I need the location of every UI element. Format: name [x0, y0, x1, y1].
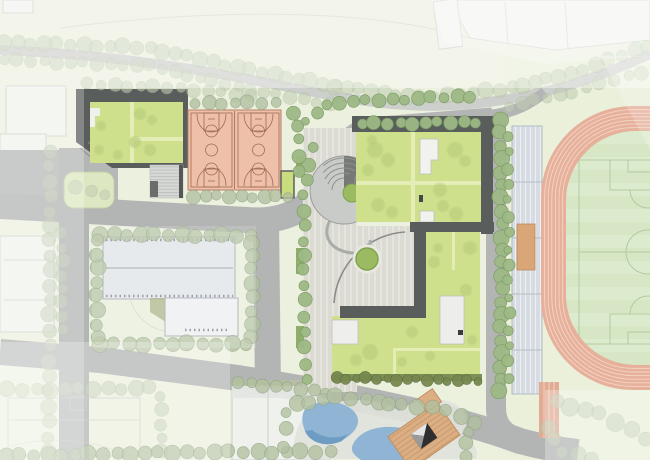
tree	[294, 134, 304, 144]
tree	[161, 82, 173, 94]
tree	[225, 335, 241, 351]
north-classroom-building	[352, 116, 494, 234]
tree	[576, 65, 588, 77]
tree	[504, 374, 514, 384]
tree	[43, 160, 55, 172]
grandstand-bleachers	[512, 126, 542, 394]
tree	[203, 95, 217, 109]
tree	[256, 379, 270, 393]
tree	[412, 91, 426, 105]
tree	[89, 288, 103, 302]
tree	[211, 190, 221, 200]
tree	[245, 306, 257, 318]
tree	[420, 117, 432, 129]
tree	[55, 270, 67, 282]
tree	[470, 118, 480, 128]
roof-penthouse	[440, 296, 464, 344]
tree	[256, 98, 268, 110]
tree	[12, 35, 26, 49]
tree	[297, 263, 309, 275]
tree	[90, 57, 104, 71]
tree	[412, 375, 420, 383]
tree	[515, 78, 531, 94]
tree	[49, 36, 63, 50]
context-building-west	[6, 86, 66, 136]
tree	[624, 421, 640, 437]
roof-cutout	[420, 211, 434, 222]
tree	[361, 393, 373, 405]
tree	[43, 369, 57, 383]
tree	[608, 75, 620, 87]
tree	[271, 89, 281, 99]
tree	[279, 71, 293, 85]
tree	[45, 339, 57, 351]
tree	[309, 384, 321, 396]
tree	[216, 87, 226, 97]
tree	[181, 70, 193, 82]
tree	[242, 62, 256, 76]
tree	[395, 398, 407, 410]
tree	[459, 436, 473, 450]
tree	[157, 433, 167, 443]
tree	[564, 66, 578, 80]
tree	[146, 79, 160, 93]
tree	[12, 448, 26, 460]
tree	[100, 190, 110, 200]
tree	[176, 82, 186, 92]
tree	[332, 96, 346, 110]
tree	[528, 93, 540, 105]
tree	[222, 190, 236, 204]
tree	[209, 338, 223, 352]
tree	[65, 57, 77, 69]
tree	[164, 445, 180, 460]
tree	[58, 382, 72, 396]
tree	[58, 284, 68, 294]
tree	[606, 414, 624, 432]
tree	[299, 219, 311, 231]
tree	[247, 193, 257, 203]
context-building	[433, 0, 463, 49]
tree	[578, 402, 594, 418]
grandstand-bench	[517, 224, 535, 270]
tree	[143, 59, 155, 71]
tree	[40, 56, 50, 66]
tree	[282, 382, 292, 392]
tree	[570, 446, 586, 460]
tree	[240, 339, 252, 351]
tree	[638, 432, 650, 446]
tree	[108, 227, 122, 241]
tree	[200, 190, 212, 202]
tree	[502, 211, 514, 223]
tree	[478, 82, 494, 98]
infield-markings	[566, 131, 650, 352]
tree	[24, 38, 36, 50]
tree	[42, 233, 56, 247]
tree	[154, 337, 166, 349]
tree	[403, 375, 413, 385]
tree	[454, 409, 470, 425]
tree	[298, 248, 312, 262]
tree	[298, 311, 310, 323]
tree	[443, 378, 451, 386]
tree	[186, 190, 200, 204]
tree	[505, 294, 513, 302]
tree	[85, 381, 101, 397]
tree	[28, 450, 40, 460]
campus-road-center	[266, 220, 268, 390]
tree	[105, 58, 117, 70]
tree	[180, 445, 194, 459]
tree	[72, 382, 84, 394]
tree	[43, 414, 57, 428]
tree	[246, 249, 260, 263]
tree	[312, 107, 324, 119]
tree	[561, 398, 579, 416]
tree	[426, 400, 440, 414]
tree	[190, 99, 200, 109]
tree	[56, 254, 70, 268]
tree	[90, 319, 102, 331]
tree	[308, 142, 318, 152]
tree	[86, 185, 98, 197]
tree	[9, 52, 23, 66]
tree	[301, 117, 309, 125]
tree	[114, 38, 130, 54]
tree	[300, 327, 310, 337]
tree	[258, 86, 270, 98]
tree	[89, 40, 103, 54]
tree	[624, 70, 634, 80]
tree	[44, 189, 58, 203]
tree	[297, 340, 311, 354]
tree	[474, 378, 482, 386]
tree	[439, 93, 449, 103]
tree	[582, 83, 592, 93]
tree	[634, 66, 648, 80]
tree	[43, 206, 55, 218]
tree	[327, 388, 343, 404]
tree	[432, 117, 442, 127]
tree	[41, 399, 57, 415]
tree	[444, 116, 458, 130]
tree	[54, 294, 68, 308]
tree	[237, 447, 249, 459]
tree	[240, 95, 254, 109]
tree	[107, 337, 119, 349]
tree	[297, 205, 311, 219]
tree	[92, 234, 104, 246]
tree	[504, 102, 514, 112]
tree	[359, 371, 371, 383]
tree	[277, 441, 289, 453]
context-building	[3, 0, 33, 13]
tree	[504, 246, 512, 254]
tree	[348, 95, 360, 107]
tree	[80, 445, 96, 460]
tree	[502, 355, 514, 367]
tree	[122, 447, 138, 460]
tree	[42, 279, 56, 293]
tree	[399, 95, 409, 105]
tree	[283, 193, 293, 203]
tree	[42, 432, 54, 444]
site-plan-drawing	[0, 0, 650, 460]
tree	[81, 77, 93, 89]
tree	[462, 375, 472, 385]
tree	[245, 262, 257, 274]
site-plan-stage	[0, 0, 650, 460]
tree	[540, 72, 552, 84]
tree	[54, 449, 68, 460]
tree	[218, 60, 230, 72]
tree	[302, 72, 318, 88]
tree	[292, 150, 306, 164]
tree	[601, 52, 615, 66]
tree	[556, 447, 568, 459]
tree	[166, 338, 180, 352]
tree	[405, 117, 419, 131]
tree	[25, 56, 37, 68]
tree	[0, 55, 10, 65]
tree	[279, 421, 293, 435]
tree	[118, 61, 128, 71]
tree	[246, 289, 260, 303]
tree	[542, 93, 552, 103]
tree	[50, 56, 64, 70]
tree	[41, 354, 57, 370]
tree	[390, 375, 402, 387]
tree	[236, 190, 248, 202]
tree	[109, 78, 123, 92]
tree	[186, 84, 200, 98]
tree	[178, 335, 194, 351]
tree	[196, 73, 206, 83]
tree	[503, 259, 515, 271]
tree	[142, 380, 156, 394]
tree	[232, 377, 244, 389]
tree	[269, 190, 281, 202]
tree	[146, 227, 160, 241]
tree	[77, 57, 87, 67]
tree	[302, 374, 312, 384]
tree	[298, 237, 308, 247]
tree	[341, 374, 351, 384]
tree	[43, 324, 57, 338]
tree	[592, 406, 606, 420]
tree	[57, 243, 67, 253]
tree	[506, 342, 514, 350]
tree	[162, 230, 174, 242]
tree	[460, 451, 472, 460]
tree	[138, 446, 152, 460]
tree	[135, 337, 151, 353]
tree	[325, 445, 337, 457]
tree	[231, 98, 241, 108]
tree	[55, 227, 67, 239]
tree	[286, 106, 300, 120]
tree	[154, 419, 166, 431]
tree	[58, 324, 68, 334]
tree	[271, 97, 281, 107]
tree	[502, 164, 514, 176]
tree	[505, 148, 513, 156]
courtyard-tree-circle	[354, 246, 380, 272]
tree	[298, 190, 308, 200]
tree	[44, 145, 58, 159]
tree	[158, 65, 168, 75]
tree	[550, 69, 566, 85]
tree	[270, 380, 282, 392]
tree	[121, 230, 133, 242]
tree	[0, 381, 15, 397]
tree	[302, 396, 316, 410]
school-annex-building	[165, 298, 238, 336]
tree	[381, 118, 393, 130]
tree	[96, 448, 110, 460]
basketball-courts	[188, 110, 281, 190]
tree	[256, 67, 268, 79]
tree	[491, 383, 507, 399]
tree	[204, 73, 218, 87]
tree	[214, 226, 230, 242]
tree	[155, 402, 169, 416]
tree	[180, 49, 192, 61]
tree	[283, 91, 297, 105]
tree	[547, 432, 561, 446]
tree	[421, 375, 433, 387]
tree	[91, 277, 103, 289]
tree	[215, 98, 227, 110]
tree	[372, 94, 386, 108]
tree	[221, 444, 235, 458]
tree	[68, 180, 82, 194]
tree	[229, 229, 243, 243]
tree	[293, 165, 305, 177]
tree	[504, 307, 516, 319]
tree	[121, 81, 133, 93]
tree	[439, 404, 451, 416]
tree	[451, 89, 465, 103]
tree	[434, 375, 444, 385]
tree	[90, 302, 106, 318]
tree	[382, 397, 396, 411]
tree	[193, 447, 205, 459]
tree	[322, 100, 332, 110]
tree	[130, 41, 144, 55]
tree	[44, 250, 56, 262]
tree	[372, 375, 382, 385]
tree	[505, 227, 515, 237]
tree	[41, 306, 57, 322]
tree	[56, 311, 68, 323]
tree	[15, 383, 29, 397]
tree	[503, 326, 513, 336]
tree	[424, 91, 436, 103]
tree	[123, 337, 137, 351]
tree	[459, 116, 471, 128]
tree	[358, 119, 368, 129]
tree	[91, 330, 105, 344]
tree	[197, 338, 209, 350]
tree	[292, 443, 308, 459]
tree	[592, 76, 606, 90]
tree	[565, 87, 577, 99]
tree	[130, 59, 144, 73]
tree	[299, 93, 311, 105]
tree	[360, 95, 370, 105]
tree	[300, 359, 312, 371]
tree	[309, 446, 323, 460]
tree	[344, 392, 358, 406]
tree	[616, 50, 628, 62]
tree	[151, 446, 163, 458]
tree	[387, 93, 399, 105]
tree	[503, 195, 511, 203]
tree	[502, 275, 512, 285]
tree	[352, 82, 364, 94]
tree	[281, 408, 291, 418]
tree	[136, 81, 146, 91]
tree	[192, 52, 208, 68]
tree	[115, 384, 127, 396]
tree	[64, 39, 76, 51]
roof-penthouse	[332, 320, 358, 344]
tree	[102, 381, 116, 395]
tree	[42, 383, 58, 399]
tree	[503, 132, 513, 142]
tree	[154, 44, 170, 60]
tree	[504, 179, 514, 189]
tree	[89, 248, 103, 262]
tree	[265, 446, 279, 460]
tree	[96, 80, 106, 90]
tree	[299, 281, 309, 291]
tree	[463, 91, 475, 103]
tree	[367, 116, 381, 130]
tree	[409, 399, 425, 415]
tree	[298, 292, 312, 306]
tree	[493, 84, 507, 98]
tree	[326, 79, 342, 95]
tree	[311, 98, 321, 108]
tree	[155, 392, 165, 402]
tree	[294, 383, 308, 397]
tree	[188, 230, 202, 244]
tree	[42, 174, 58, 190]
tree	[396, 118, 406, 128]
tree	[32, 383, 44, 395]
